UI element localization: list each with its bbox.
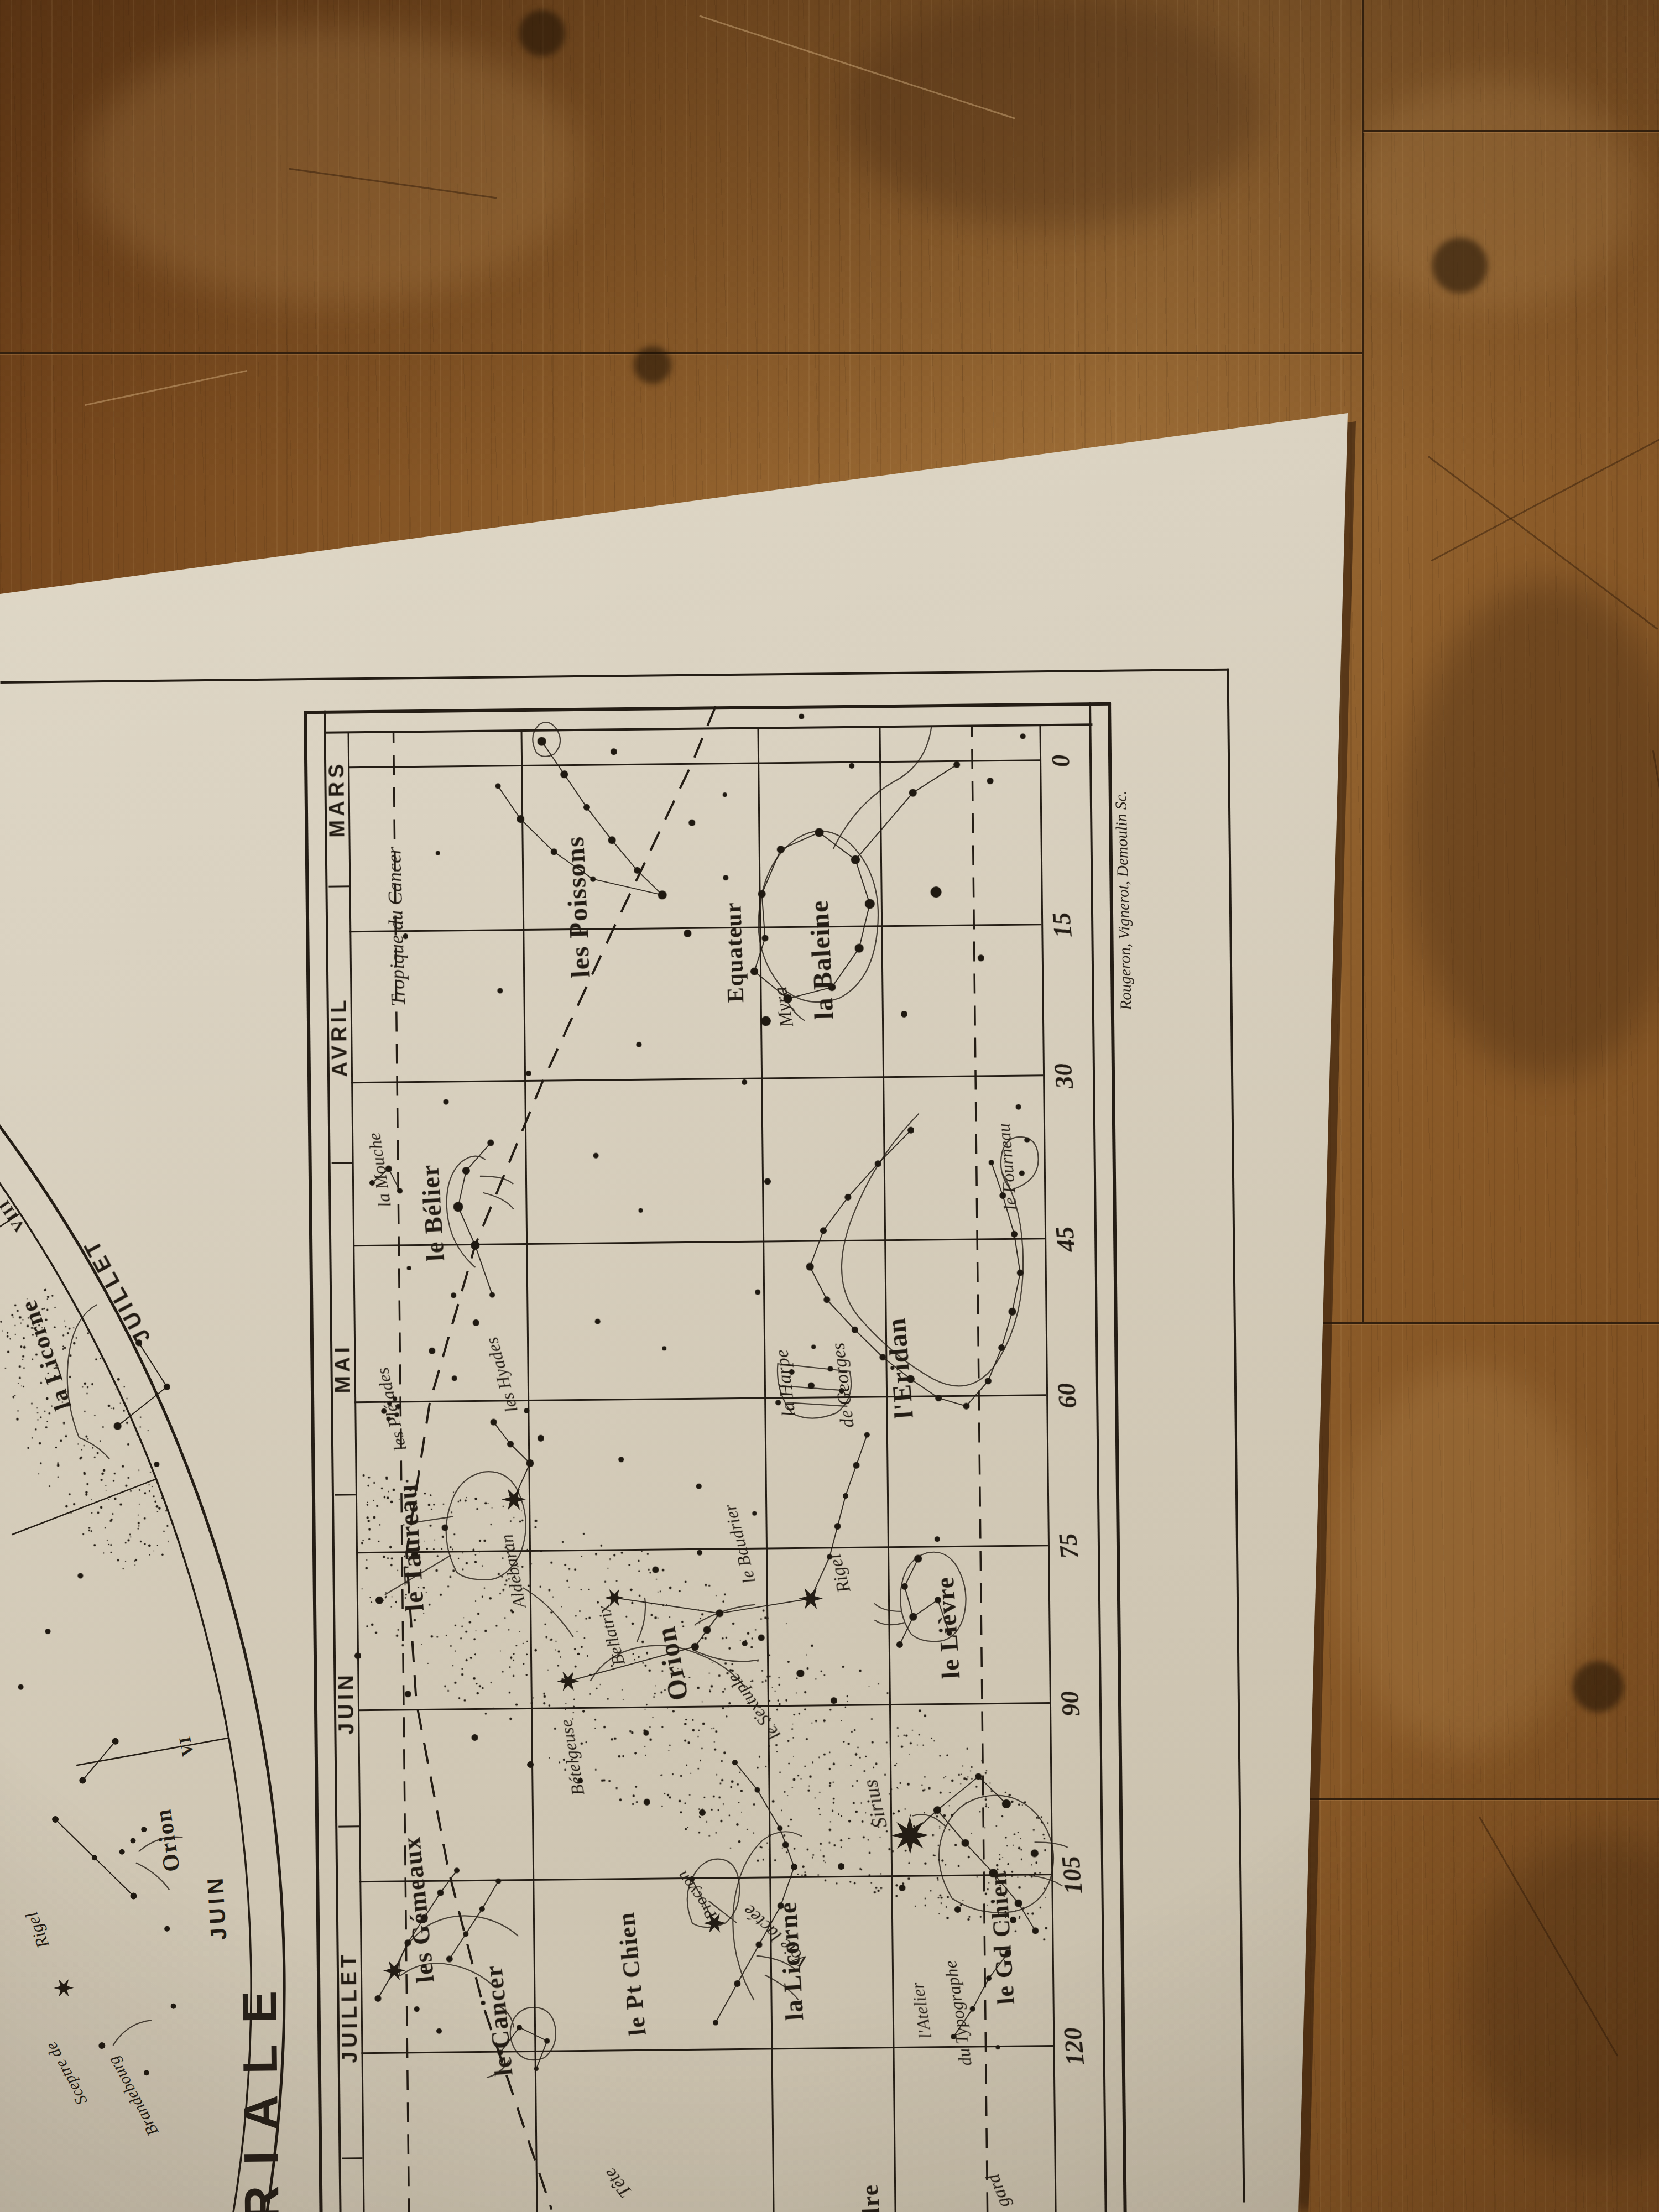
star-dot xyxy=(998,1344,1005,1351)
star-dot xyxy=(1015,1900,1022,1907)
ra-number: 45 xyxy=(1052,1225,1079,1253)
star-dot xyxy=(583,804,590,811)
star-dot xyxy=(662,1346,666,1350)
constellation-label: le Bélier xyxy=(417,1164,448,1262)
wood-knot xyxy=(634,346,671,384)
star-dot xyxy=(985,1378,992,1384)
star-dot xyxy=(696,1484,702,1489)
star-dot xyxy=(1002,1799,1011,1808)
star-dot xyxy=(92,1855,97,1860)
star-dot xyxy=(864,1432,870,1438)
star-dot xyxy=(808,1383,815,1389)
star-dot xyxy=(79,1777,86,1783)
rim-month-label: JUIN xyxy=(204,1874,229,1940)
star-dot xyxy=(154,1462,159,1467)
star-dot xyxy=(699,1809,706,1816)
star-dot xyxy=(517,815,524,823)
star-dot xyxy=(875,1160,881,1167)
star-dot xyxy=(970,2006,975,2012)
star-dot xyxy=(560,770,568,778)
star-dot xyxy=(815,828,823,837)
month-tick xyxy=(335,1494,356,1495)
constellation-label: Equateur xyxy=(721,901,747,1003)
constellation-label: la Baleine xyxy=(806,899,838,1020)
star-dot xyxy=(527,1761,534,1768)
star-dot xyxy=(909,1613,917,1621)
star-dot xyxy=(1024,1137,1030,1142)
ra-number: 60 xyxy=(1053,1382,1081,1410)
star-dot xyxy=(755,1787,760,1793)
constellation-label: le Lièvre xyxy=(932,1575,964,1679)
rim-hour-numeral: VI xyxy=(176,1735,196,1757)
constellation-label: Tropique du Cancer xyxy=(384,847,408,1007)
star-dot xyxy=(471,1241,479,1250)
month-label: JUIN xyxy=(335,1671,357,1735)
star-dot xyxy=(831,1697,837,1704)
month-label: MARS xyxy=(326,760,347,837)
star-dot xyxy=(703,1626,711,1634)
star-dot xyxy=(1019,1171,1025,1176)
ra-number: 75 xyxy=(1055,1532,1083,1560)
star-dot xyxy=(507,1441,514,1447)
star-dot xyxy=(782,1841,789,1848)
star-dot xyxy=(454,1867,460,1873)
star-dot xyxy=(684,930,691,937)
star-dot xyxy=(644,1799,650,1806)
circular-map-stipple xyxy=(0,1188,170,1688)
ra-number: 30 xyxy=(1050,1062,1078,1090)
wood-blotch xyxy=(841,0,1261,227)
star-dot xyxy=(761,935,768,941)
star-dot xyxy=(354,1652,361,1659)
star-dot xyxy=(1020,733,1026,739)
constellation-label: les Poissons xyxy=(561,836,594,979)
star-dot xyxy=(462,1167,470,1175)
plank-seam xyxy=(1288,1798,1659,1800)
star-dot xyxy=(755,1290,760,1295)
star-dot xyxy=(758,1635,765,1641)
star-dot xyxy=(397,1188,403,1193)
month-label: MAI xyxy=(332,1343,353,1394)
star-dot xyxy=(844,1194,851,1201)
star-dot xyxy=(517,2025,522,2030)
star-dot xyxy=(611,748,617,755)
star-dot xyxy=(524,1408,529,1413)
star-dot xyxy=(851,855,860,864)
star-dot xyxy=(723,875,728,880)
wood-knot xyxy=(1432,238,1488,293)
star-dot xyxy=(405,1691,411,1697)
star-dot xyxy=(755,1942,762,1948)
star-dot xyxy=(429,1348,435,1354)
star-dot xyxy=(658,890,667,899)
month-label: AVRIL xyxy=(328,996,351,1077)
star-dot xyxy=(750,968,758,975)
star-dot xyxy=(930,886,941,898)
star-dot xyxy=(962,1839,969,1847)
star-dot xyxy=(436,851,440,855)
star-dot xyxy=(742,1641,748,1646)
star-dot xyxy=(135,1339,142,1346)
star-dot xyxy=(551,848,557,855)
star-dot xyxy=(544,2038,550,2044)
star-dot xyxy=(954,1906,961,1913)
star-dot xyxy=(777,1825,782,1831)
wood-knot xyxy=(519,10,565,56)
star-dot xyxy=(495,783,500,789)
star-dot xyxy=(491,1419,497,1426)
star-dot xyxy=(437,1890,444,1896)
star-dot xyxy=(451,1292,456,1298)
star-dot xyxy=(820,1227,827,1234)
star-dot xyxy=(843,1493,848,1499)
star-dot xyxy=(442,1524,448,1531)
month-tick xyxy=(332,1162,352,1164)
star-dot xyxy=(52,1816,59,1823)
star-dot xyxy=(463,1931,468,1937)
star-dot xyxy=(901,1583,908,1590)
star-dot xyxy=(593,1153,598,1159)
star-dot xyxy=(777,846,785,853)
star-dot xyxy=(98,2042,105,2049)
wood-blotch xyxy=(1338,1366,1593,1753)
star-dot xyxy=(834,1523,841,1530)
star-dot xyxy=(732,1760,738,1765)
star-dot xyxy=(734,1980,740,1987)
star-dot xyxy=(375,1597,383,1604)
star-dot xyxy=(935,1395,942,1401)
star-dot xyxy=(838,1863,844,1870)
ra-number: 15 xyxy=(1048,911,1076,939)
star-dot xyxy=(636,1042,641,1047)
star-dot xyxy=(899,1885,905,1891)
ra-number: 105 xyxy=(1058,1855,1087,1895)
star-dot xyxy=(995,2045,1000,2049)
star-dot xyxy=(791,1864,797,1870)
star-dot xyxy=(909,789,917,797)
month-label: JUILLET xyxy=(338,1951,361,2064)
star-dot xyxy=(526,1459,534,1467)
star-dot xyxy=(538,737,546,746)
wood-blotch xyxy=(1349,77,1637,310)
plank-seam xyxy=(1362,0,1364,1323)
star-dot xyxy=(963,1403,969,1410)
star-dot xyxy=(634,867,640,874)
plank-seam xyxy=(1363,130,1659,132)
star-dot xyxy=(538,1435,544,1442)
star-dot xyxy=(479,1906,485,1912)
star-dot xyxy=(796,1670,804,1677)
star-dot xyxy=(806,1263,814,1271)
star-dot xyxy=(1017,1270,1024,1276)
star-dot xyxy=(691,1643,699,1651)
star-dot xyxy=(652,1567,659,1573)
star-dot xyxy=(1031,1849,1039,1857)
star-dot xyxy=(130,1838,135,1843)
star-dot xyxy=(752,1511,757,1516)
star-dot xyxy=(119,1849,125,1855)
month-tick xyxy=(342,2157,363,2159)
star-dot xyxy=(914,1555,922,1563)
star-dot xyxy=(901,1011,907,1018)
star-dot xyxy=(688,820,695,826)
star-dot xyxy=(933,1806,941,1814)
star-dot xyxy=(171,2004,176,2009)
star-dot xyxy=(978,954,984,961)
ra-number: 90 xyxy=(1057,1690,1084,1718)
star-dot xyxy=(18,1684,24,1690)
star-dot xyxy=(407,1266,411,1270)
star-dot xyxy=(526,1071,531,1076)
ra-number: 120 xyxy=(1060,2026,1088,2066)
star-dot xyxy=(758,890,766,898)
star-dot xyxy=(487,1140,494,1146)
star-dot xyxy=(164,1384,170,1390)
star-dot xyxy=(697,1550,702,1556)
star-dot xyxy=(716,1609,723,1617)
star-dot xyxy=(799,714,804,719)
star-dot xyxy=(141,1827,147,1832)
star-dot xyxy=(975,1773,982,1780)
star-dot xyxy=(436,2028,442,2034)
star-dot xyxy=(45,1629,50,1634)
wood-blotch xyxy=(83,28,581,304)
star-dot xyxy=(495,1879,501,1884)
star-dot xyxy=(907,1127,914,1134)
star-dot xyxy=(823,1296,830,1303)
star-dot xyxy=(497,988,503,993)
star-dot xyxy=(452,1375,457,1381)
star-dot xyxy=(130,1892,137,1899)
star-dot xyxy=(595,1319,601,1324)
star-dot xyxy=(443,1099,448,1104)
star-dot xyxy=(414,2006,420,2012)
star-dot xyxy=(764,1178,771,1185)
star-dot xyxy=(374,1995,381,2002)
star-dot xyxy=(114,1422,122,1430)
star-dot xyxy=(713,2020,718,2025)
star-dot xyxy=(1016,1104,1021,1110)
star-dot xyxy=(989,1160,994,1165)
star-dot xyxy=(164,1926,170,1932)
star-dot xyxy=(1011,1231,1018,1238)
star-dot xyxy=(618,1457,624,1462)
star-dot xyxy=(144,2070,149,2075)
star-dot xyxy=(853,1462,859,1469)
star-dot xyxy=(473,1319,479,1326)
star-dot xyxy=(446,1955,453,1962)
star-dot xyxy=(935,1536,940,1542)
star-dot xyxy=(849,763,854,769)
star-dot xyxy=(639,1208,643,1213)
star-dot xyxy=(608,836,616,844)
plank-seam xyxy=(1300,1322,1659,1324)
plank-seam xyxy=(0,352,1363,354)
star-dot xyxy=(453,1202,463,1212)
star-dot xyxy=(855,944,864,953)
star-dot xyxy=(489,1292,495,1298)
star-dot xyxy=(643,1730,649,1736)
star-dot xyxy=(534,2067,539,2071)
star-dot xyxy=(112,1738,119,1745)
star-dot xyxy=(471,1734,478,1741)
star-dot xyxy=(987,778,993,784)
star-dot xyxy=(896,1641,903,1648)
constellation-label: l'Hydre xyxy=(858,2183,888,2212)
star-dot xyxy=(953,761,960,768)
constellation-connector xyxy=(82,1741,116,1781)
wood-knot xyxy=(1573,1661,1624,1712)
photo-canvas: JUILLETJUINMAIAVRILMARS01530456075901051… xyxy=(0,0,1659,2212)
constellation-figure xyxy=(113,2020,152,2046)
star-dot xyxy=(1032,1927,1039,1934)
star-dot xyxy=(1008,1308,1016,1316)
star-symbol-rigel-circ xyxy=(54,1979,74,1997)
star-dot xyxy=(852,1327,858,1333)
star-dot xyxy=(811,1345,816,1349)
star-dot xyxy=(742,1079,747,1085)
star-dot xyxy=(865,899,875,909)
star-dot xyxy=(761,1016,771,1026)
month-tick xyxy=(328,885,349,887)
star-dot xyxy=(723,792,727,797)
plate-title-fragment: RIALE xyxy=(235,1970,286,2212)
ra-number: 0 xyxy=(1047,754,1074,769)
star-dot xyxy=(77,1573,83,1578)
month-tick xyxy=(338,1825,359,1827)
